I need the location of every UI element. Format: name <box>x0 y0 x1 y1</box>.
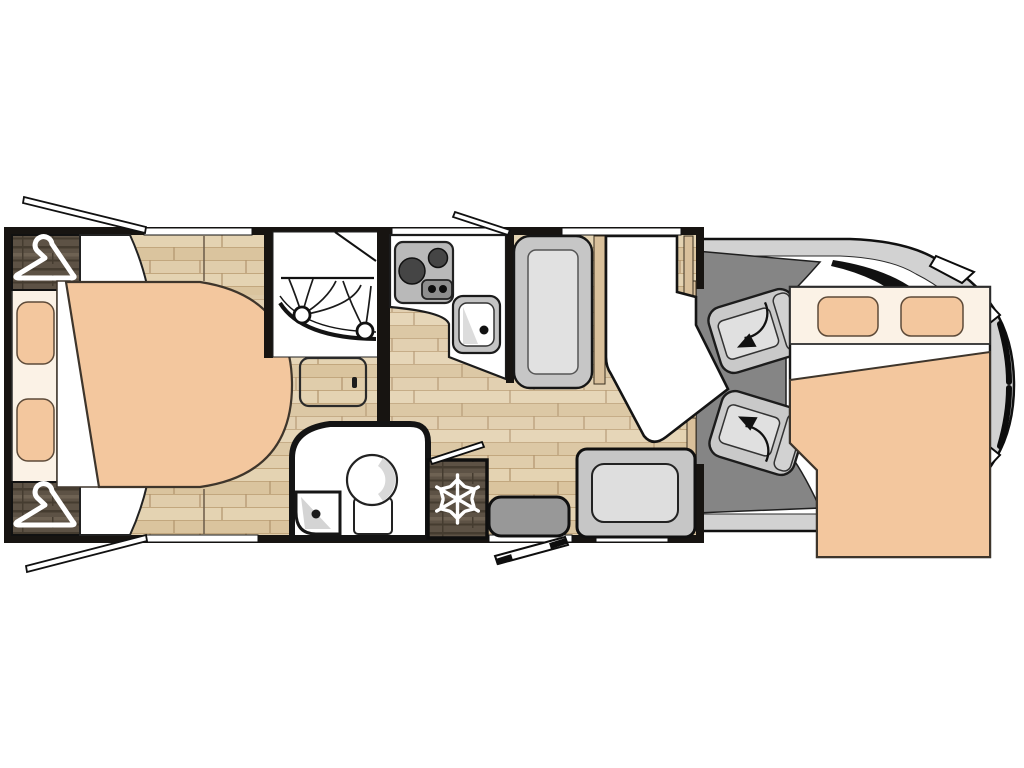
drop-down-bed <box>790 287 990 557</box>
hob-control-panel <box>422 280 452 299</box>
hob-knob <box>428 285 436 293</box>
window-bedroom-bottom <box>146 535 258 542</box>
shower-wall-left <box>264 227 273 358</box>
window-bedroom-top <box>144 228 252 235</box>
travel-seat-cushion <box>592 464 678 522</box>
sideboard-trim <box>594 236 605 384</box>
dinette-bench-cushion <box>528 250 578 374</box>
bed-pillow <box>17 399 54 461</box>
window-dinette <box>562 228 681 235</box>
bed-pillow <box>17 302 54 364</box>
hatch-handle <box>352 377 357 388</box>
curtain-ring <box>357 323 373 339</box>
hob-knob <box>439 285 447 293</box>
motorhome-floorplan <box>0 0 1024 768</box>
hob-burner-large <box>399 258 425 284</box>
bed-pillow <box>901 297 963 336</box>
wall-right-bottom <box>696 464 704 543</box>
shower-wall-right-spine <box>377 227 390 433</box>
curtain-ring <box>294 307 310 323</box>
drop-down-bed-duvet <box>790 352 990 557</box>
bed-pillow <box>818 297 878 336</box>
floorplan-page <box>0 0 1024 768</box>
wall-left <box>4 227 12 543</box>
washbasin-tap <box>312 510 321 519</box>
island-bed-duvet <box>66 282 292 487</box>
sideboard-trim <box>684 236 693 296</box>
sink-tap <box>480 326 489 335</box>
entrance-step <box>489 497 569 536</box>
toilet-room <box>292 424 428 538</box>
hob-burner-small <box>429 249 448 268</box>
wall-right-top <box>696 227 704 289</box>
